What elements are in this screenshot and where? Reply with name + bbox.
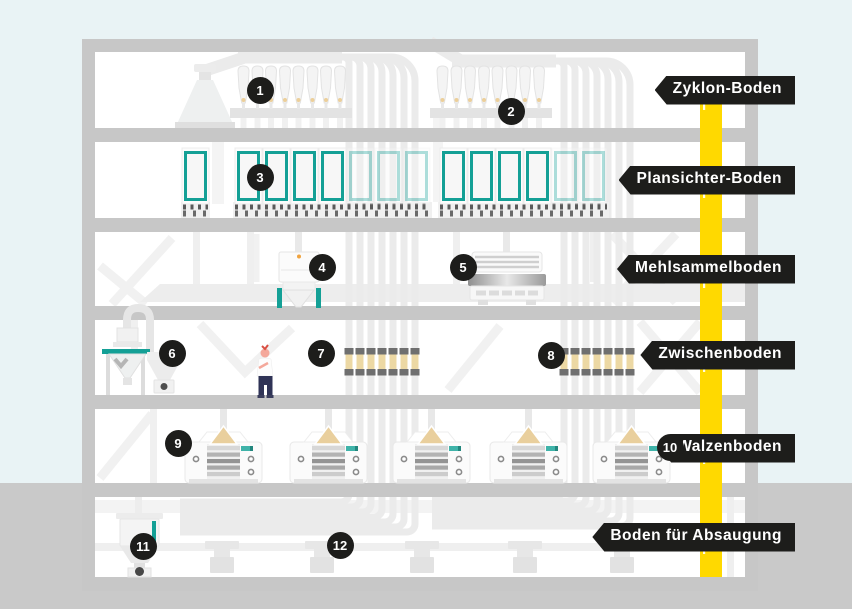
hotspot-badge-9[interactable]: 9 xyxy=(165,430,192,457)
elevator-shaft xyxy=(700,90,722,577)
hotspot-badge-7[interactable]: 7 xyxy=(308,340,335,367)
mill-cross-section-diagram: 1 2 3 4 5 6 7 8 9 10 11 12 Zyklon-Boden … xyxy=(0,0,852,609)
hotspot-badge-1[interactable]: 1 xyxy=(247,77,274,104)
floor-label-mehlsammelboden: Mehlsammelboden xyxy=(617,255,795,284)
hotspot-badge-4[interactable]: 4 xyxy=(309,254,336,281)
hotspot-badge-10[interactable]: 10 xyxy=(657,434,684,461)
hotspot-badge-2[interactable]: 2 xyxy=(498,98,525,125)
hotspot-badge-12[interactable]: 12 xyxy=(327,532,354,559)
flour-collection-conveyor xyxy=(468,252,546,305)
hotspot-badge-6[interactable]: 6 xyxy=(159,340,186,367)
hotspot-badge-11[interactable]: 11 xyxy=(130,533,157,560)
hotspot-badge-5[interactable]: 5 xyxy=(450,254,477,281)
hotspot-badge-3[interactable]: 3 xyxy=(247,164,274,191)
floor-label-zwischenboden: Zwischenboden xyxy=(640,341,795,370)
hotspot-badge-8[interactable]: 8 xyxy=(538,342,565,369)
plansifter-group-2 xyxy=(438,148,609,218)
floor-label-plansichter-boden: Plansichter-Boden xyxy=(619,166,795,195)
floor-label-boden-fuer-absaugung: Boden für Absaugung xyxy=(592,523,795,552)
floor-label-zyklon-boden: Zyklon-Boden xyxy=(655,76,795,105)
